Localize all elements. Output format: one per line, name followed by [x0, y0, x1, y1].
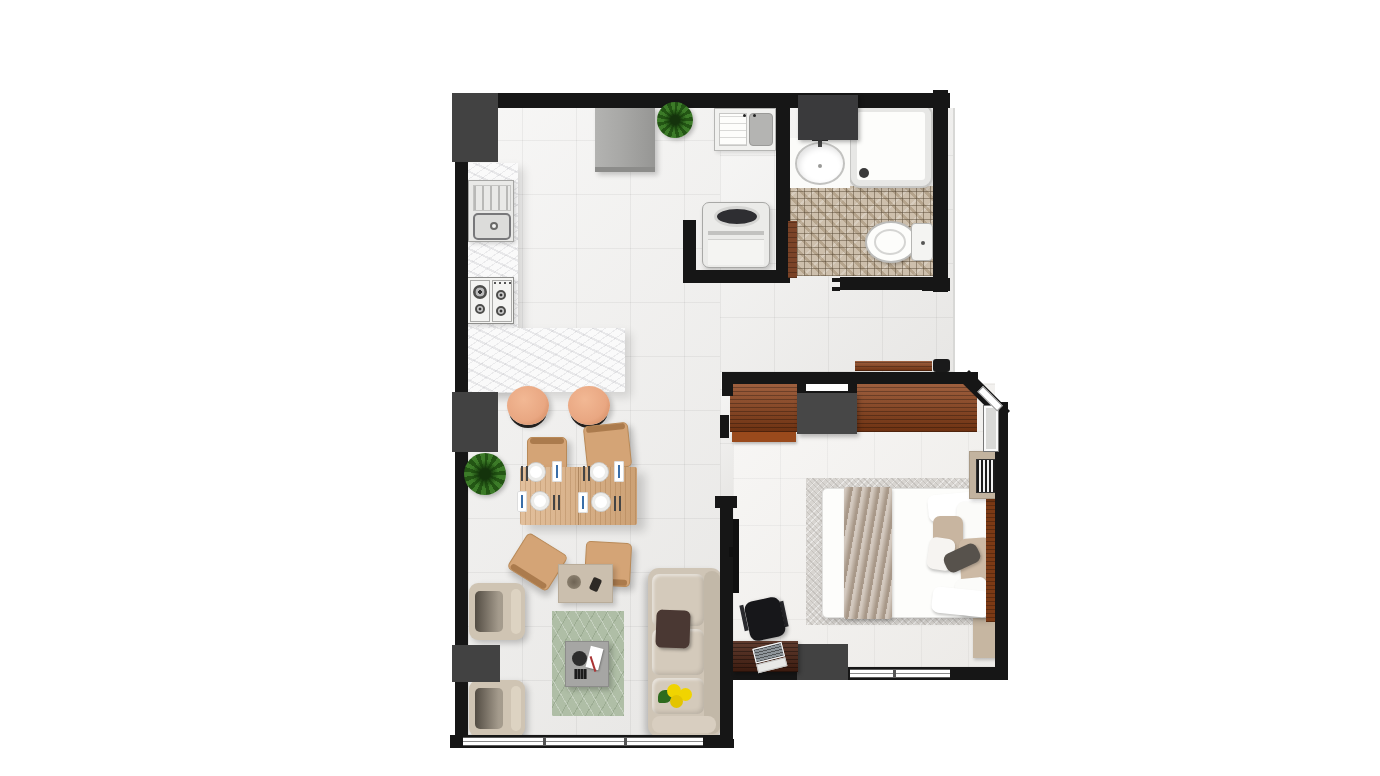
- flush-button-icon: [921, 241, 925, 245]
- hall-shelf-over-wall: [855, 361, 932, 371]
- column-bedroom-block: [797, 644, 848, 680]
- wall-top: [452, 93, 950, 108]
- window-mullion: [624, 738, 627, 745]
- cutlery-pair-icon: [583, 466, 591, 481]
- plate: [526, 462, 546, 482]
- washer-controls: [708, 231, 764, 235]
- shower-tray: [849, 104, 933, 188]
- wall-bath-right: [933, 90, 948, 292]
- toilet-seat-ring: [874, 229, 906, 255]
- wall-bedroom-top: [722, 372, 978, 384]
- console-table: [558, 564, 613, 603]
- laundry-tub: [749, 113, 773, 146]
- vanity-counter: [790, 138, 850, 188]
- fridge: [595, 106, 655, 172]
- wardrobe-bench: [732, 432, 796, 442]
- kettle-icon: [572, 651, 587, 666]
- potted-plant-icon: [657, 102, 693, 138]
- armchair-front: [511, 589, 521, 634]
- plate: [591, 492, 611, 512]
- wall-bedroom-top-foot: [722, 372, 733, 396]
- burner-small-icon: [496, 290, 506, 300]
- wall-bath-bottom: [840, 277, 934, 290]
- coffee-table: [565, 641, 609, 687]
- bedroom-window-right: [984, 406, 998, 451]
- bedroom-window-bottom: [850, 669, 950, 678]
- living-room-window: [463, 737, 703, 746]
- cutlery-icon: [556, 465, 558, 478]
- laundry-tray: [719, 113, 747, 146]
- chair-backrest: [530, 438, 564, 444]
- armchair: [469, 583, 525, 640]
- cutlery-icon: [521, 495, 523, 508]
- window-mullion: [543, 738, 546, 745]
- books-icon: [976, 459, 997, 493]
- sofa-pillow-dark: [655, 609, 690, 648]
- flower-icon: [670, 695, 683, 708]
- niche-shelf: [806, 384, 848, 391]
- washer-lid-icon: [714, 206, 760, 227]
- potted-plant-icon: [464, 453, 506, 495]
- column-mid-left: [452, 392, 498, 452]
- column-top-left: [452, 93, 498, 162]
- burner-large-icon: [473, 285, 487, 299]
- sofa-armrest: [652, 716, 716, 733]
- wall-divider-cap: [715, 496, 737, 508]
- shower-drain-icon: [859, 168, 869, 178]
- floor-plan-canvas: [0, 0, 1380, 776]
- cutlery-pair-icon: [553, 495, 561, 510]
- dining-chair: [583, 422, 632, 471]
- bar-stool: [568, 386, 610, 425]
- toilet-bowl: [865, 221, 917, 263]
- door-jamb-bedroom: [720, 415, 729, 438]
- sofa: [648, 568, 722, 737]
- bathroom-door-leaf: [788, 221, 797, 278]
- kitchen-counter-peninsula: [468, 328, 625, 392]
- sink-drain-dot-icon: [818, 164, 822, 168]
- column-low-left: [452, 645, 500, 682]
- napkin-with-cutlery: [552, 461, 562, 482]
- armchair-front: [511, 686, 521, 731]
- napkin-with-cutlery: [517, 491, 527, 512]
- washer-body: [708, 239, 764, 265]
- armchair-seat-shadow: [475, 591, 503, 632]
- sink-faucet-icon: [490, 222, 498, 230]
- window-mullion: [893, 670, 896, 677]
- bed-blanket: [844, 487, 892, 619]
- faucet-dot-icon: [753, 114, 756, 117]
- door-jamb-tick: [832, 278, 840, 282]
- flower-throw-icon: [658, 684, 696, 710]
- basket-icon: [567, 575, 581, 589]
- door-jamb-tick: [832, 287, 840, 291]
- cutlery-pair-icon: [614, 496, 622, 511]
- armchair: [469, 680, 525, 737]
- wardrobe-left: [730, 382, 797, 432]
- wall-laundry-bottom: [683, 270, 780, 283]
- remote-grid-icon: [574, 669, 587, 679]
- gas-cooktop: [467, 277, 514, 324]
- vanity-cabinet-overhead: [798, 95, 858, 140]
- faucet-dot-icon: [743, 114, 746, 117]
- chair-backrest: [586, 423, 625, 433]
- wall-divider-living-bedroom: [720, 498, 733, 748]
- sofa-backrest: [704, 571, 720, 734]
- cutlery-icon: [618, 465, 620, 478]
- kitchen-sink-unit: [468, 180, 514, 242]
- sink-basin: [473, 213, 511, 240]
- napkin-with-cutlery: [578, 492, 588, 513]
- burner-small-icon: [475, 304, 485, 314]
- armchair-seat-shadow: [475, 688, 503, 729]
- cutlery-icon: [582, 496, 584, 509]
- burner-small-icon: [496, 306, 506, 316]
- wall-knob-block: [933, 359, 950, 372]
- plate: [530, 491, 550, 511]
- napkin-with-cutlery: [614, 461, 624, 482]
- laundry-sink: [714, 108, 776, 151]
- wardrobe-right: [857, 382, 977, 432]
- plate: [589, 462, 609, 482]
- wardrobe-niche-cabinet: [797, 393, 857, 434]
- tv-mount-icon: [729, 547, 734, 557]
- faucet-icon: [818, 140, 822, 147]
- decor-item-icon: [589, 577, 603, 593]
- bar-stool: [507, 386, 549, 425]
- toilet-tank: [911, 223, 933, 261]
- sink-drainboard: [473, 185, 511, 211]
- cutlery-pair-icon: [521, 466, 529, 481]
- washing-machine: [702, 202, 770, 268]
